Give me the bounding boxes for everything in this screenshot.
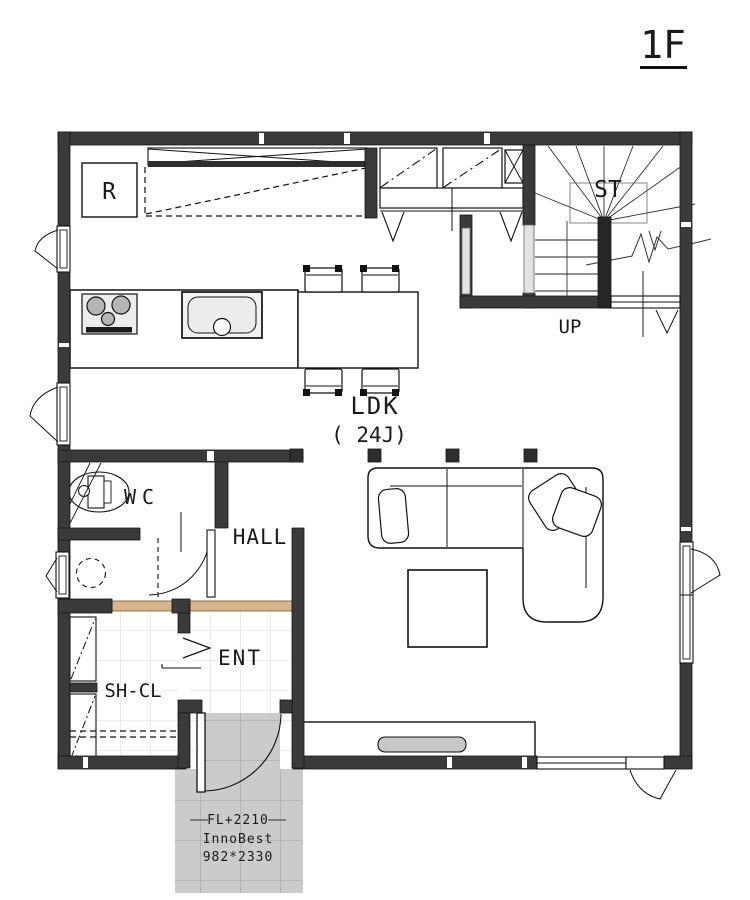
dashed-circle-marker	[77, 559, 106, 588]
wall-bottom-left	[58, 756, 186, 769]
pantry-cupboard	[380, 148, 523, 241]
refrigerator-label: R	[102, 179, 116, 205]
stairs-steps	[535, 240, 598, 291]
chair	[303, 265, 342, 292]
window-stairs-south	[611, 271, 680, 337]
tv	[378, 737, 466, 752]
floor-plan-page: 1F ST UP LDK ( 24J) WC HALL ENT SH-CL R …	[0, 0, 750, 900]
porch-size: 982*2330	[203, 850, 274, 865]
wall-kitchen-stub	[365, 148, 377, 218]
stove	[82, 294, 137, 334]
wall-hall-east	[292, 528, 304, 768]
wall-bottom-mid	[293, 756, 537, 769]
chair	[303, 369, 342, 396]
door-post	[178, 700, 202, 713]
porch-product: InnoBest	[203, 832, 274, 847]
room-label-stairs: ST	[594, 177, 622, 203]
sofa-armrest-pillow	[378, 488, 410, 544]
post	[290, 449, 303, 462]
coffee-table	[408, 570, 487, 647]
dining-table	[298, 292, 418, 368]
window-left-kitchen	[30, 383, 70, 445]
wall-step-left	[58, 599, 112, 613]
floor-plan: 1F ST UP LDK ( 24J) WC HALL ENT SH-CL R …	[0, 0, 750, 900]
floor-title-underline	[640, 66, 687, 69]
wall-pantry-stairs	[523, 145, 535, 225]
toilet	[66, 463, 129, 531]
window-bottom-living	[537, 757, 626, 769]
room-label-ent: ENT	[218, 646, 262, 670]
entry-step-board	[112, 601, 300, 611]
window-right-living	[680, 542, 720, 663]
window-left-washroom	[46, 552, 69, 598]
washroom-door	[149, 512, 215, 597]
door-post	[280, 700, 292, 713]
wall-wc-top	[58, 450, 303, 462]
post	[446, 449, 459, 462]
stairs-door-band	[524, 225, 534, 293]
tv-board	[302, 722, 535, 758]
window-left-upper	[35, 226, 70, 272]
wall-bottom-corner	[664, 756, 692, 769]
room-label-shcl: SH-CL	[104, 680, 161, 702]
shelf-divider	[70, 683, 97, 692]
wall-shcl-ent-lower	[178, 713, 190, 768]
chair	[360, 265, 399, 292]
wall-right	[680, 132, 692, 768]
room-label-wc: WC	[124, 485, 160, 509]
stairs-up-label: UP	[559, 316, 582, 338]
porch-floor-level: FL+2210	[207, 813, 269, 828]
room-size-ldk: ( 24J)	[331, 423, 407, 447]
wall-wc-right	[215, 462, 228, 528]
post	[368, 449, 381, 462]
stairs-newel-post	[598, 217, 611, 308]
sink	[182, 292, 262, 338]
step-post	[172, 599, 190, 613]
stairs-west-opening	[462, 228, 470, 294]
wall-top	[58, 132, 692, 145]
wall-wc-bottom	[58, 528, 140, 540]
floor-title: 1F	[640, 23, 686, 67]
room-label-ldk: LDK	[350, 392, 399, 420]
kitchen-back-cabinet	[148, 148, 367, 167]
wall-stairs-south	[460, 296, 612, 308]
post	[524, 449, 537, 462]
room-label-hall: HALL	[233, 525, 288, 549]
kitchen-upper-cabinet-dashed	[145, 167, 366, 216]
